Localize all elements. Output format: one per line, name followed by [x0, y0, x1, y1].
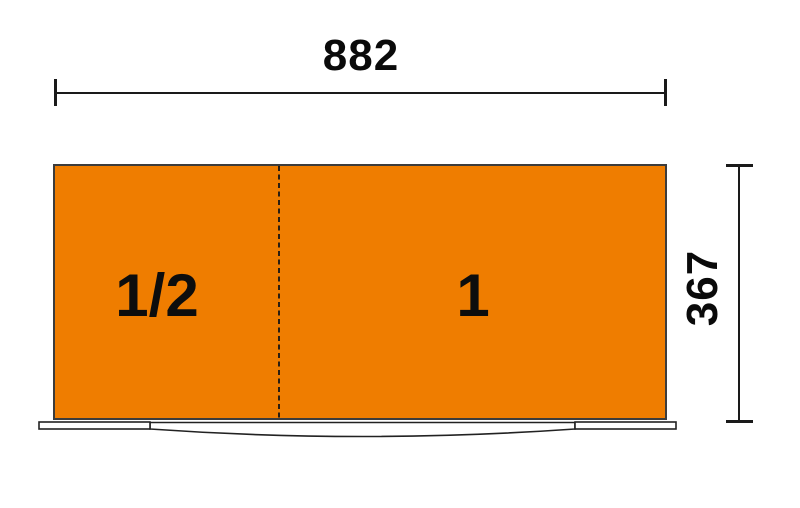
height-dimension-label: 367	[681, 208, 725, 368]
height-dimension-line	[738, 165, 740, 422]
section-label-half-module: 1/2	[57, 265, 257, 327]
width-dimension-right-tick	[664, 79, 667, 106]
technical-drawing-canvas: 882 1/2 1 367	[0, 0, 800, 508]
drawer-front-right-cap	[575, 422, 676, 429]
section-label-full-module: 1	[373, 265, 573, 327]
width-dimension-left-tick	[54, 79, 57, 106]
drawer-body-rectangle: 1/2 1	[53, 164, 667, 420]
width-dimension-line	[55, 92, 667, 94]
height-dimension-top-tick	[726, 164, 753, 167]
height-dimension-bottom-tick	[726, 420, 753, 423]
drawer-front-left-cap	[39, 422, 150, 429]
width-dimension-label: 882	[55, 33, 667, 79]
drawer-front-handle-recess	[150, 423, 575, 437]
